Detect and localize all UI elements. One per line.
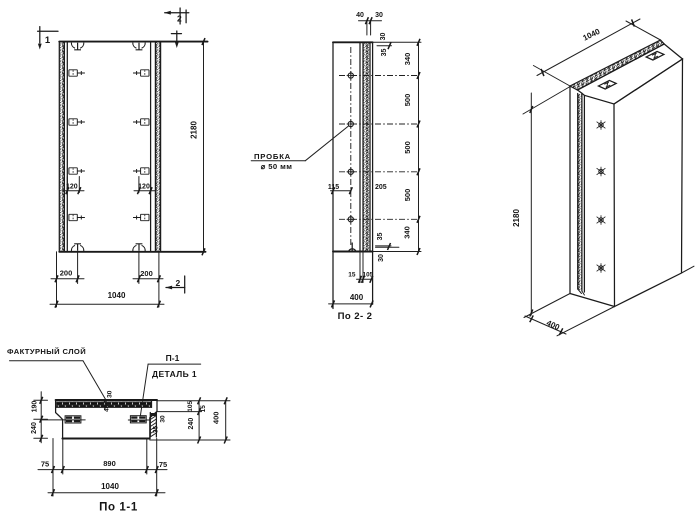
svg-text:30: 30 bbox=[380, 33, 387, 41]
svg-text:105: 105 bbox=[187, 400, 194, 411]
svg-text:500: 500 bbox=[403, 141, 412, 154]
svg-text:ФАКТУРНЫЙ СЛОЙ: ФАКТУРНЫЙ СЛОЙ bbox=[7, 347, 86, 356]
svg-text:75: 75 bbox=[41, 459, 49, 468]
svg-text:400: 400 bbox=[212, 412, 221, 425]
svg-text:105: 105 bbox=[363, 271, 374, 278]
svg-text:По 1-1: По 1-1 bbox=[99, 502, 138, 514]
svg-text:30: 30 bbox=[159, 415, 166, 423]
svg-text:205: 205 bbox=[375, 184, 387, 191]
svg-text:ДЕТАЛЬ 1: ДЕТАЛЬ 1 bbox=[152, 369, 197, 379]
svg-text:240: 240 bbox=[188, 418, 195, 430]
svg-text:35: 35 bbox=[377, 233, 384, 241]
svg-text:500: 500 bbox=[403, 94, 412, 107]
svg-text:1040: 1040 bbox=[108, 291, 126, 300]
svg-text:75: 75 bbox=[159, 460, 167, 469]
svg-text:1040: 1040 bbox=[101, 482, 119, 491]
svg-text:30: 30 bbox=[107, 390, 114, 398]
svg-text:2: 2 bbox=[177, 14, 182, 24]
svg-text:35: 35 bbox=[381, 49, 388, 57]
svg-text:2: 2 bbox=[176, 278, 181, 288]
svg-text:200: 200 bbox=[140, 269, 153, 278]
svg-text:120: 120 bbox=[138, 183, 150, 190]
svg-text:35: 35 bbox=[153, 426, 160, 434]
svg-text:⌀ 50 мм: ⌀ 50 мм bbox=[261, 162, 293, 171]
svg-text:200: 200 bbox=[60, 269, 73, 278]
svg-text:30: 30 bbox=[378, 254, 385, 262]
svg-text:15: 15 bbox=[348, 272, 356, 279]
svg-text:П-1: П-1 bbox=[166, 353, 180, 363]
svg-text:30: 30 bbox=[375, 12, 383, 19]
svg-text:1: 1 bbox=[45, 35, 51, 46]
svg-text:340: 340 bbox=[403, 226, 412, 239]
svg-text:340: 340 bbox=[403, 53, 412, 66]
svg-text:120: 120 bbox=[66, 183, 78, 190]
svg-text:890: 890 bbox=[103, 459, 116, 468]
svg-text:2180: 2180 bbox=[190, 121, 199, 139]
svg-text:ПРОБКА: ПРОБКА bbox=[254, 152, 291, 161]
svg-text:40: 40 bbox=[356, 12, 364, 19]
svg-text:500: 500 bbox=[403, 189, 412, 202]
svg-text:2180: 2180 bbox=[512, 209, 521, 227]
svg-text:По 2- 2: По 2- 2 bbox=[338, 311, 373, 322]
svg-text:115: 115 bbox=[328, 184, 339, 191]
svg-text:400: 400 bbox=[350, 293, 364, 302]
svg-text:15: 15 bbox=[200, 405, 207, 413]
svg-text:190: 190 bbox=[31, 401, 38, 413]
svg-text:240: 240 bbox=[31, 422, 38, 434]
